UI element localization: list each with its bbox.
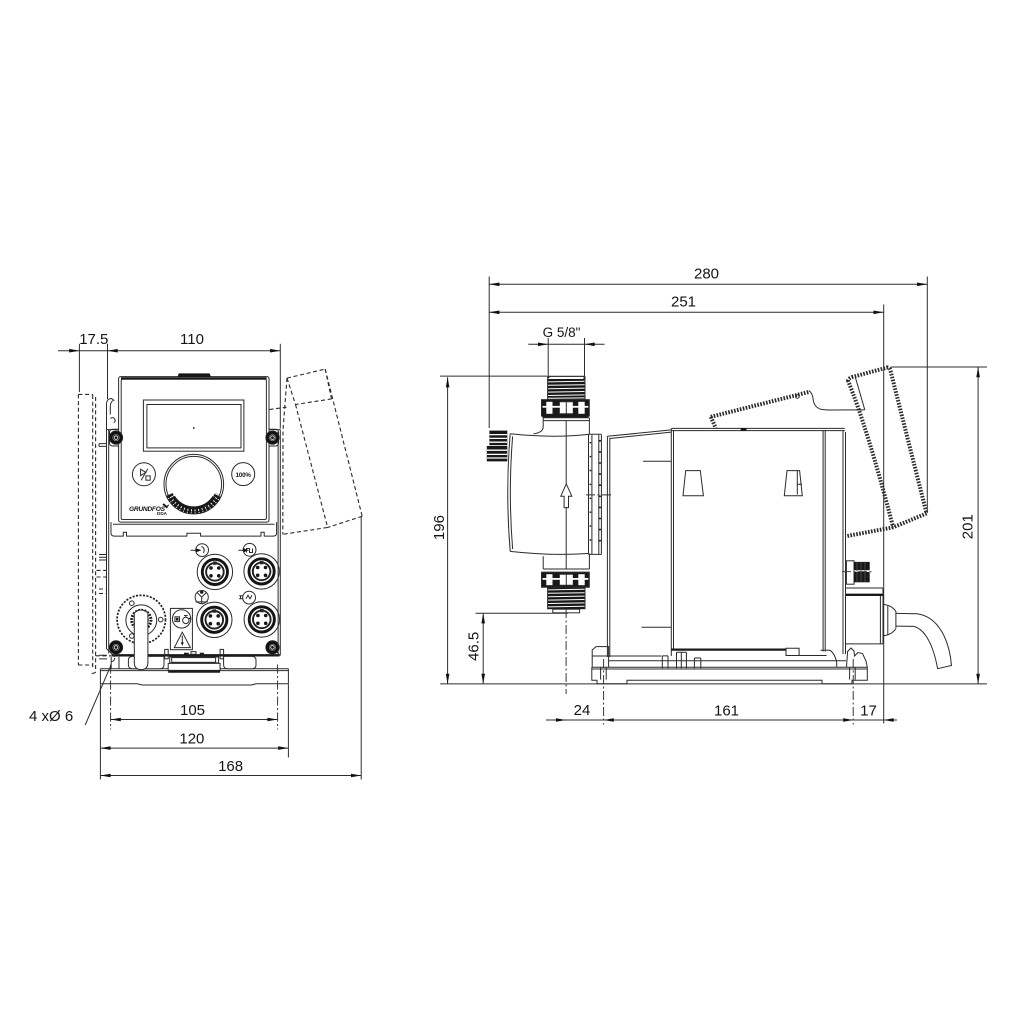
svg-text:120: 120 <box>179 730 204 747</box>
svg-text:105: 105 <box>180 702 205 719</box>
svg-text:G 5/8": G 5/8" <box>543 325 581 340</box>
svg-text:251: 251 <box>671 294 696 311</box>
svg-text:17.5: 17.5 <box>79 331 108 348</box>
svg-text:168: 168 <box>218 758 243 775</box>
svg-text:110: 110 <box>180 331 204 348</box>
svg-text:46.5: 46.5 <box>466 632 483 661</box>
svg-text:201: 201 <box>960 514 977 539</box>
svg-text:DDA: DDA <box>157 511 168 516</box>
svg-text:4 xØ 6: 4 xØ 6 <box>29 708 73 725</box>
svg-text:196: 196 <box>431 515 448 540</box>
svg-text:280: 280 <box>694 266 719 283</box>
svg-text:161: 161 <box>714 702 739 719</box>
svg-text:17: 17 <box>860 702 877 719</box>
svg-text:100%: 100% <box>236 472 252 479</box>
svg-text:24: 24 <box>574 702 591 719</box>
